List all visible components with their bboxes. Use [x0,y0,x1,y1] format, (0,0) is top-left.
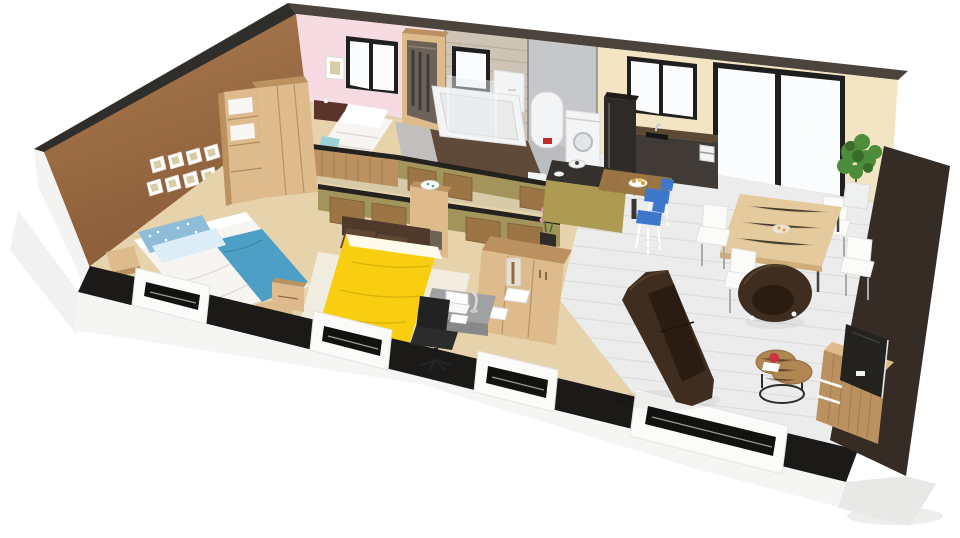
armchair [738,264,812,322]
red-bowl [769,353,779,363]
decor-bowl [421,181,439,190]
island-dish [554,172,564,177]
fruit-3 [641,181,645,185]
washing-machine-door [574,133,592,151]
office-chair-back [416,296,450,332]
kitchen-window-pane-right [663,65,693,117]
floor-plan-stage [0,0,960,538]
decor-bowl-dot [427,183,430,186]
dining-plate-food [778,227,781,230]
plant-pot [843,182,870,209]
desk-lamp-base [470,309,478,313]
bed2-nightstand [272,278,307,312]
pink-wall-art-frame [326,56,344,80]
armchair-seat [752,285,794,315]
nightstand-item [324,99,328,103]
decor-bowl-dot2 [432,185,435,188]
wardrobe-door-panel [256,82,318,198]
bedroom1-window-pane-left [350,41,369,89]
cooking-pot-lid [575,161,579,165]
floor-plan-render [0,0,960,538]
dining-plate-food2 [783,229,786,232]
dining-plate [772,225,790,234]
sliding-door-pane-left [718,68,775,185]
fruit-2 [638,178,642,182]
armchair-foot-2 [792,312,797,317]
shower-glass-screen [448,76,496,142]
tv-remote [856,371,865,376]
fruit-1 [632,179,636,183]
armchair-foot-1 [750,316,755,321]
wardrobe-divider [218,76,318,206]
water-heater-badge [543,138,552,144]
bedroom1-window-pane-right [373,44,394,91]
sliding-door-pane-right [781,75,840,196]
